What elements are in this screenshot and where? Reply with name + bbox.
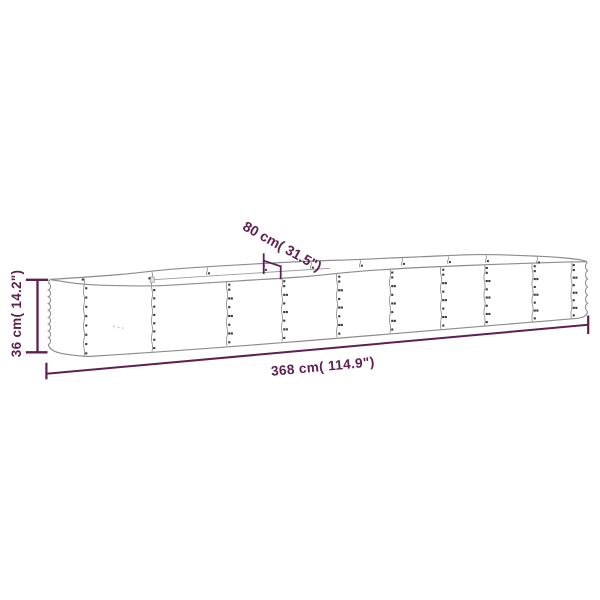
svg-text:36 cm( 14.2"): 36 cm( 14.2") [9, 270, 24, 358]
svg-text:368 cm( 114.9"): 368 cm( 114.9") [270, 354, 375, 379]
svg-text:80 cm( 31.5"): 80 cm( 31.5") [240, 218, 324, 274]
